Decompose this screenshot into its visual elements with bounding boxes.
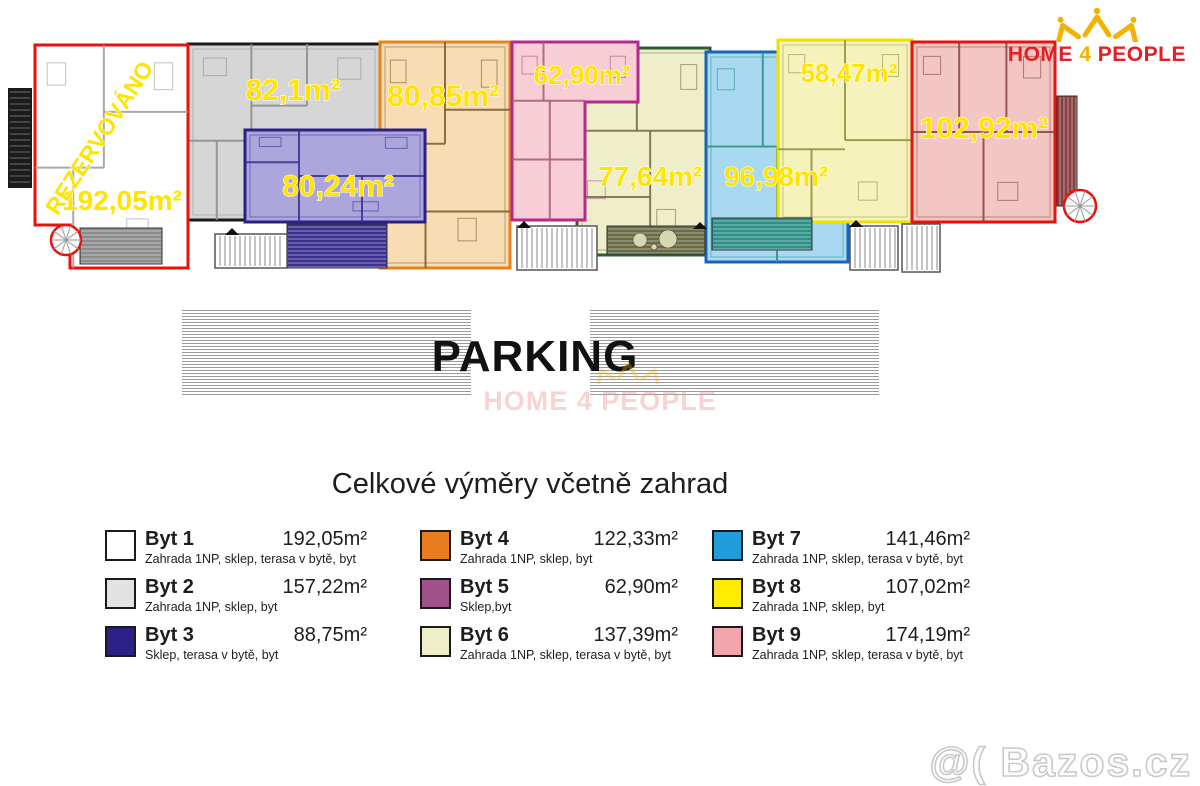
legend-unit-area: 122,33m² bbox=[594, 528, 679, 551]
legend-unit-area: 192,05m² bbox=[283, 528, 368, 551]
legend-unit-name: Byt 4 bbox=[460, 528, 509, 551]
terrace-deck bbox=[607, 226, 705, 254]
legend-unit-desc: Zahrada 1NP, sklep, terasa v bytě, byt bbox=[460, 648, 678, 662]
legend-unit-desc: Zahrada 1NP, sklep, byt bbox=[460, 552, 678, 566]
staircase bbox=[215, 234, 287, 268]
legend-unit-desc: Zahrada 1NP, sklep, byt bbox=[145, 600, 367, 614]
area-label-byt-9: 102,92m² bbox=[920, 112, 1048, 145]
legend: Byt 1192,05m²Zahrada 1NP, sklep, terasa … bbox=[105, 528, 970, 672]
watermark-home4people: HOME 4 PEOPLE bbox=[470, 386, 730, 417]
area-label-byt-3: 80,24m² bbox=[282, 170, 394, 203]
watermark-crown-icon bbox=[588, 356, 668, 384]
legend-unit-name: Byt 2 bbox=[145, 576, 194, 599]
staircase bbox=[902, 224, 940, 272]
staircase bbox=[517, 226, 597, 270]
legend-unit-area: 107,02m² bbox=[886, 576, 971, 599]
legend-unit-desc: Zahrada 1NP, sklep, terasa v bytě, byt bbox=[752, 648, 970, 662]
legend-unit-name: Byt 6 bbox=[460, 624, 509, 647]
legend-unit-area: 137,39m² bbox=[594, 624, 679, 647]
legend-unit-area: 62,90m² bbox=[605, 576, 678, 599]
legend-item-byt-1: Byt 1192,05m²Zahrada 1NP, sklep, terasa … bbox=[105, 528, 367, 568]
legend-unit-desc: Zahrada 1NP, sklep, terasa v bytě, byt bbox=[145, 552, 367, 566]
real-estate-floorplan-image: 192,05m²82,1m²80,24m²80,85m²62,90m²77,64… bbox=[0, 0, 1200, 786]
area-label-byt-4: 80,85m² bbox=[387, 80, 499, 113]
area-label-byt-5: 62,90m² bbox=[534, 60, 631, 90]
terrace-deck bbox=[80, 228, 162, 264]
logo-word-4: 4 bbox=[1079, 43, 1091, 66]
legend-unit-name: Byt 5 bbox=[460, 576, 509, 599]
legend-item-byt-2: Byt 2157,22m²Zahrada 1NP, sklep, byt bbox=[105, 576, 367, 616]
area-label-byt-8: 58,47m² bbox=[801, 58, 898, 88]
legend-swatch bbox=[105, 626, 136, 657]
entrance-marker bbox=[517, 221, 531, 228]
home4people-crown-icon bbox=[1045, 8, 1149, 42]
legend-unit-name: Byt 1 bbox=[145, 528, 194, 551]
service-bar bbox=[8, 88, 32, 188]
legend-item-byt-6: Byt 6137,39m²Zahrada 1NP, sklep, terasa … bbox=[420, 624, 678, 664]
logo-word-home: HOME bbox=[1008, 43, 1073, 66]
staircase bbox=[850, 226, 898, 270]
legend-swatch bbox=[420, 530, 451, 561]
legend-unit-name: Byt 7 bbox=[752, 528, 801, 551]
bazos-watermark: @( Bazos.cz bbox=[930, 739, 1192, 786]
spiral-staircase bbox=[1064, 190, 1096, 222]
spiral-staircase bbox=[51, 225, 81, 255]
area-label-byt-2: 82,1m² bbox=[245, 74, 340, 107]
legend-item-byt-9: Byt 9174,19m²Zahrada 1NP, sklep, terasa … bbox=[712, 624, 970, 664]
logo-word-people: PEOPLE bbox=[1098, 43, 1186, 66]
legend-unit-area: 157,22m² bbox=[283, 576, 368, 599]
legend-unit-area: 88,75m² bbox=[294, 624, 367, 647]
area-label-byt-7: 96,98m² bbox=[724, 161, 828, 192]
legend-item-byt-5: Byt 562,90m²Sklep,byt bbox=[420, 576, 678, 616]
area-label-byt-6: 77,64m² bbox=[598, 161, 702, 192]
legend-item-byt-8: Byt 8107,02m²Zahrada 1NP, sklep, byt bbox=[712, 576, 970, 616]
legend-column-2: Byt 4122,33m²Zahrada 1NP, sklep, bytByt … bbox=[420, 528, 678, 672]
legend-unit-name: Byt 9 bbox=[752, 624, 801, 647]
legend-unit-name: Byt 3 bbox=[145, 624, 194, 647]
legend-swatch bbox=[712, 626, 743, 657]
legend-unit-desc: Sklep,byt bbox=[460, 600, 678, 614]
home4people-logo: HOME 4 PEOPLE bbox=[1008, 8, 1186, 67]
entrance-marker bbox=[225, 228, 239, 235]
legend-swatch bbox=[420, 626, 451, 657]
legend-item-byt-4: Byt 4122,33m²Zahrada 1NP, sklep, byt bbox=[420, 528, 678, 568]
legend-unit-name: Byt 8 bbox=[752, 576, 801, 599]
legend-swatch bbox=[105, 578, 136, 609]
legend-swatch bbox=[712, 578, 743, 609]
terrace-deck bbox=[1057, 96, 1077, 206]
legend-unit-area: 141,46m² bbox=[886, 528, 971, 551]
home4people-logo-text: HOME 4 PEOPLE bbox=[1008, 43, 1186, 67]
legend-column-1: Byt 1192,05m²Zahrada 1NP, sklep, terasa … bbox=[105, 528, 367, 672]
legend-swatch bbox=[105, 530, 136, 561]
legend-unit-desc: Zahrada 1NP, sklep, terasa v bytě, byt bbox=[752, 552, 970, 566]
legend-unit-desc: Sklep, terasa v bytě, byt bbox=[145, 648, 367, 662]
legend-swatch bbox=[712, 530, 743, 561]
terrace-deck bbox=[712, 218, 812, 250]
legend-item-byt-7: Byt 7141,46m²Zahrada 1NP, sklep, terasa … bbox=[712, 528, 970, 568]
legend-title: Celkové výměry včetně zahrad bbox=[0, 468, 1060, 501]
terrace-deck bbox=[287, 224, 387, 268]
legend-swatch bbox=[420, 578, 451, 609]
legend-column-3: Byt 7141,46m²Zahrada 1NP, sklep, terasa … bbox=[712, 528, 970, 672]
legend-unit-area: 174,19m² bbox=[886, 624, 971, 647]
legend-item-byt-3: Byt 388,75m²Sklep, terasa v bytě, byt bbox=[105, 624, 367, 664]
legend-unit-desc: Zahrada 1NP, sklep, byt bbox=[752, 600, 970, 614]
